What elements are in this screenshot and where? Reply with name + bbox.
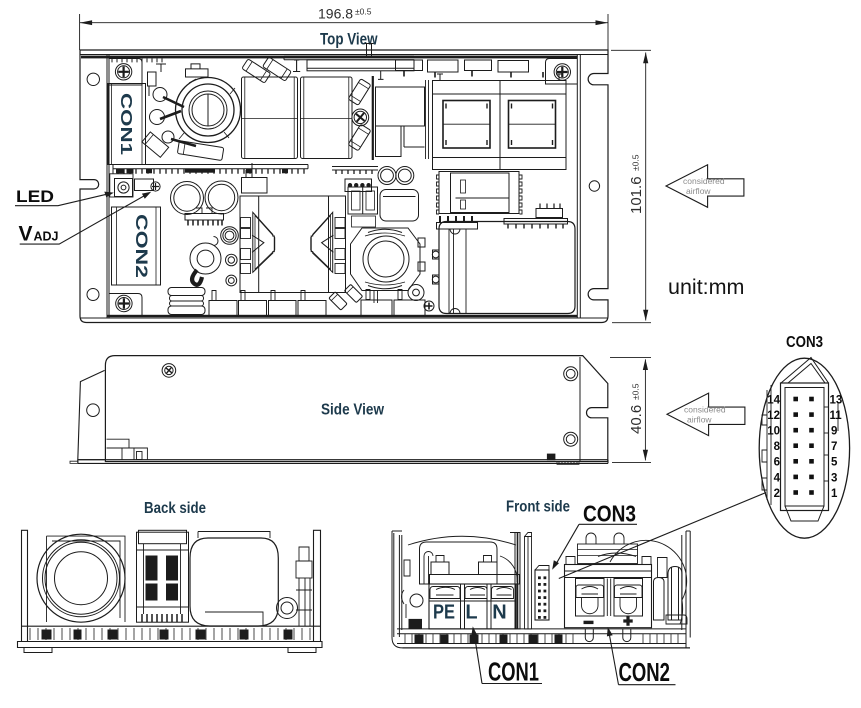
svg-text:13: 13 [830, 394, 843, 406]
svg-text:±0.5: ±0.5 [355, 7, 372, 17]
svg-text:8: 8 [774, 441, 781, 453]
svg-text:V: V [19, 223, 33, 246]
svg-text:L: L [465, 602, 477, 624]
svg-text:7: 7 [831, 441, 837, 453]
svg-text:considered: considered [683, 176, 725, 186]
svg-text:CON1: CON1 [488, 656, 539, 686]
svg-text:N: N [492, 602, 506, 624]
svg-text:9: 9 [831, 426, 837, 438]
svg-text:CON3: CON3 [583, 501, 636, 527]
svg-text:unit:mm: unit:mm [668, 275, 744, 299]
svg-text:2: 2 [774, 488, 780, 500]
svg-text:±0.5: ±0.5 [631, 154, 641, 171]
svg-text:airflow: airflow [686, 186, 711, 196]
svg-text:101.6: 101.6 [628, 176, 645, 214]
svg-text:Front side: Front side [506, 499, 570, 516]
svg-text:±0.5: ±0.5 [631, 383, 641, 400]
svg-text:CON2: CON2 [132, 214, 151, 278]
svg-text:Side View: Side View [321, 402, 384, 419]
svg-text:11: 11 [830, 410, 843, 422]
svg-text:LED: LED [16, 187, 54, 206]
svg-text:12: 12 [767, 410, 780, 422]
svg-text:CON2: CON2 [619, 657, 671, 687]
svg-text:14: 14 [767, 394, 780, 406]
svg-text:ADJ: ADJ [34, 230, 59, 244]
svg-text:3: 3 [831, 472, 837, 484]
svg-text:40.6: 40.6 [628, 405, 645, 434]
svg-text:10: 10 [767, 426, 780, 438]
svg-text:5: 5 [831, 457, 838, 469]
svg-text:PE: PE [433, 602, 455, 624]
svg-text:considered: considered [684, 404, 726, 414]
svg-text:Back side: Back side [144, 500, 206, 517]
svg-text:6: 6 [774, 457, 780, 469]
svg-text:1: 1 [831, 488, 838, 500]
svg-text:196.8: 196.8 [318, 6, 353, 22]
svg-text:Top View: Top View [320, 30, 378, 49]
svg-text:airflow: airflow [687, 414, 712, 424]
svg-text:CON3: CON3 [786, 334, 823, 351]
svg-text:4: 4 [774, 472, 781, 484]
svg-text:CON1: CON1 [117, 93, 134, 155]
